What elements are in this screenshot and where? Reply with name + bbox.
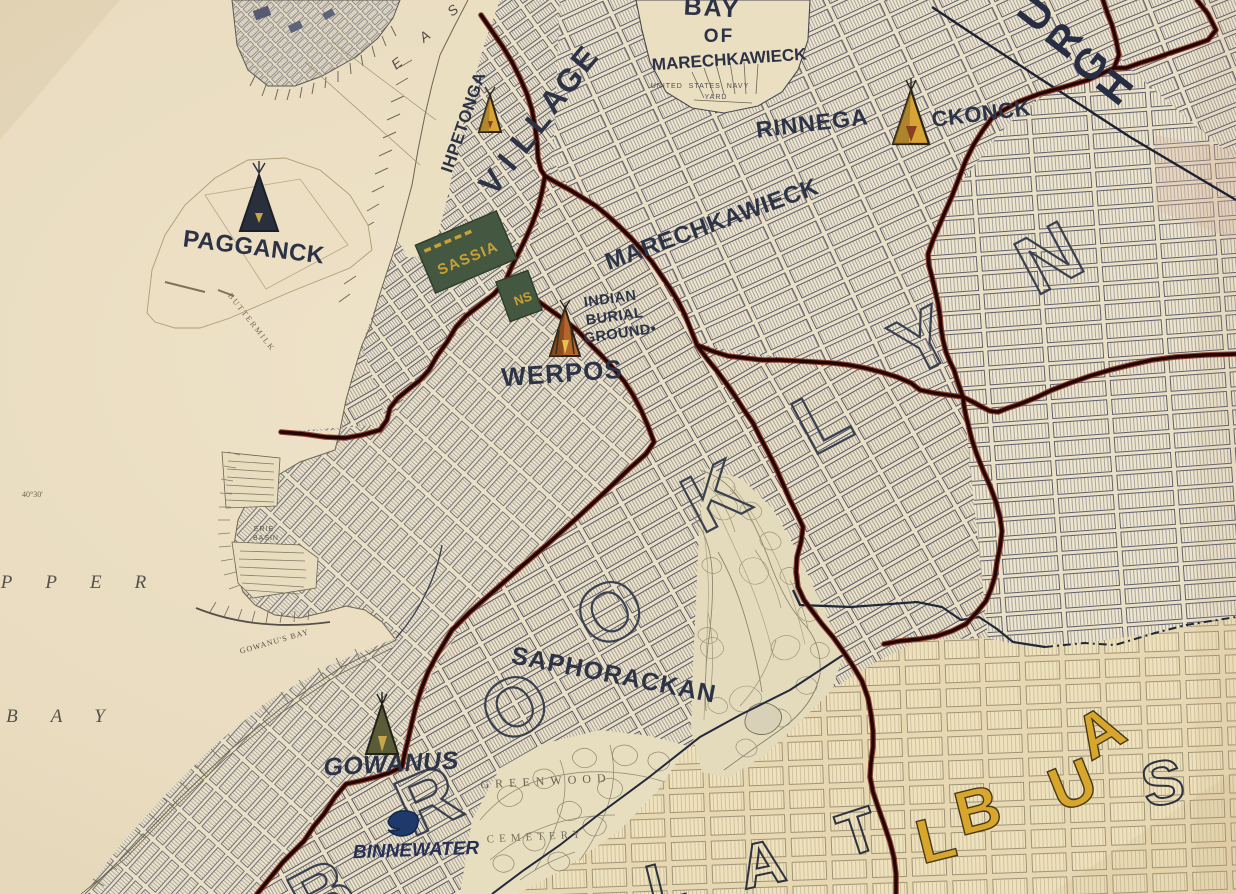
svg-text:UNITED STATES NAVY: UNITED STATES NAVY [651,83,750,90]
svg-text:OF: OF [704,26,734,47]
svg-text:BASIN: BASIN [253,535,279,542]
svg-text:ERIE: ERIE [254,526,274,533]
svg-text:40°30': 40°30' [22,490,43,499]
svg-text:BAY: BAY [6,706,138,727]
svg-text:BINNEWATER: BINNEWATER [353,838,480,863]
svg-text:BAY: BAY [683,0,741,23]
svg-text:PPER: PPER [0,572,179,593]
svg-text:YARD: YARD [705,94,728,101]
